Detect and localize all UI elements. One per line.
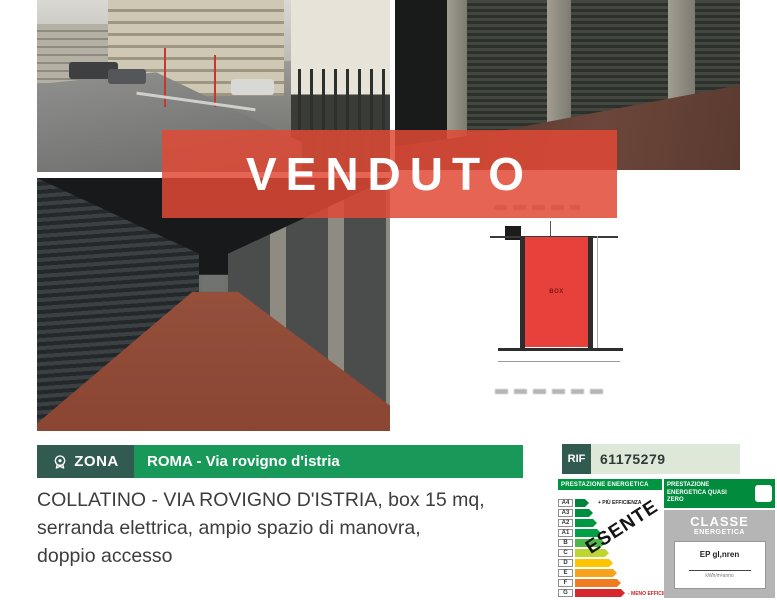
energy-performance-panel: PRESTAZIONE ENERGETICA A4A3A2A1BCDEFG + … [556, 477, 777, 600]
energy-class-title: CLASSE [664, 510, 775, 529]
reference-label: RIF [562, 444, 591, 474]
energy-class-label: C [558, 549, 573, 557]
floorplan-drawing: BOX [480, 196, 705, 424]
floorplan-tick [550, 221, 551, 237]
listing-description: COLLATINO - VIA ROVIGNO D'ISTRIA, box 15… [37, 486, 552, 570]
zone-label: ZONA [74, 453, 119, 470]
energy-class-label: E [558, 569, 573, 577]
floorplan-right-wall [588, 236, 593, 348]
energy-class-row: E [558, 568, 662, 578]
description-line: serranda elettrica, ampio spazio di mano… [37, 514, 552, 542]
reference-badge: RIF 61175279 [562, 444, 740, 474]
energy-class-label: B [558, 539, 573, 547]
ep-value-line [689, 570, 751, 571]
description-line: COLLATINO - VIA ROVIGNO D'ISTRIA, box 15… [37, 486, 552, 514]
sold-banner: VENDUTO [162, 130, 617, 218]
energy-class-label: A2 [558, 519, 573, 527]
ep-value-box: EP gl,nren kWh/m²anno [674, 541, 766, 589]
energy-class-label: A4 [558, 499, 573, 507]
parked-car [231, 79, 273, 94]
energy-class-arrow [575, 569, 617, 577]
energy-class-row: C [558, 548, 662, 558]
energy-class-arrow [575, 589, 625, 597]
location-badge-icon [52, 454, 68, 470]
floorplan-room-label: BOX [549, 289, 564, 295]
floorplan-outer-line [597, 236, 598, 348]
floorplan-room-box: BOX [525, 237, 588, 347]
ep-label: EP gl,nren [675, 550, 765, 559]
energy-class-label: F [558, 579, 573, 587]
zone-bar: ZONA ROMA - Via rovigno d'istria [37, 445, 523, 478]
nzeb-box: PRESTAZIONE ENERGETICA QUASI ZERO [664, 479, 775, 508]
energy-class-arrow [575, 499, 589, 507]
energy-class-box: CLASSE ENERGETICA EP gl,nren kWh/m²anno [664, 510, 775, 598]
energy-class-label: A1 [558, 529, 573, 537]
zone-value: ROMA - Via rovigno d'istria [147, 453, 340, 470]
energy-class-label: D [558, 559, 573, 567]
description-line: doppio accesso [37, 542, 552, 570]
nzeb-label: PRESTAZIONE ENERGETICA QUASI ZERO [667, 482, 729, 505]
energy-scale-header: PRESTAZIONE ENERGETICA [558, 479, 662, 490]
energy-class-label: G [558, 589, 573, 597]
zone-value-bar: ROMA - Via rovigno d'istria [134, 445, 523, 478]
energy-class-arrow [575, 579, 621, 587]
floorplan-bottom-wall [498, 348, 623, 351]
floorplan-caption-bottom [495, 389, 603, 394]
energy-right-column: PRESTAZIONE ENERGETICA QUASI ZERO CLASSE… [664, 479, 775, 598]
reference-number: 61175279 [591, 444, 740, 474]
listing-flyer: BOX VENDUTO ZONA ROMA - Via rovigno d'is… [0, 0, 777, 600]
energy-class-row: D [558, 558, 662, 568]
nzeb-checkbox [755, 485, 772, 502]
floorplan-bottom-line [498, 361, 620, 362]
energy-class-row: F [558, 578, 662, 588]
energy-class-subtitle: ENERGETICA [664, 529, 775, 536]
sold-banner-label: VENDUTO [246, 147, 533, 201]
zone-badge: ZONA [37, 445, 134, 478]
ep-unit: kWh/m²anno [675, 573, 765, 579]
energy-class-arrow [575, 559, 613, 567]
energy-class-arrow [575, 509, 593, 517]
street-sign-post [214, 55, 216, 107]
energy-class-label: A3 [558, 509, 573, 517]
energy-class-arrow [575, 519, 597, 527]
parked-car [108, 69, 147, 84]
